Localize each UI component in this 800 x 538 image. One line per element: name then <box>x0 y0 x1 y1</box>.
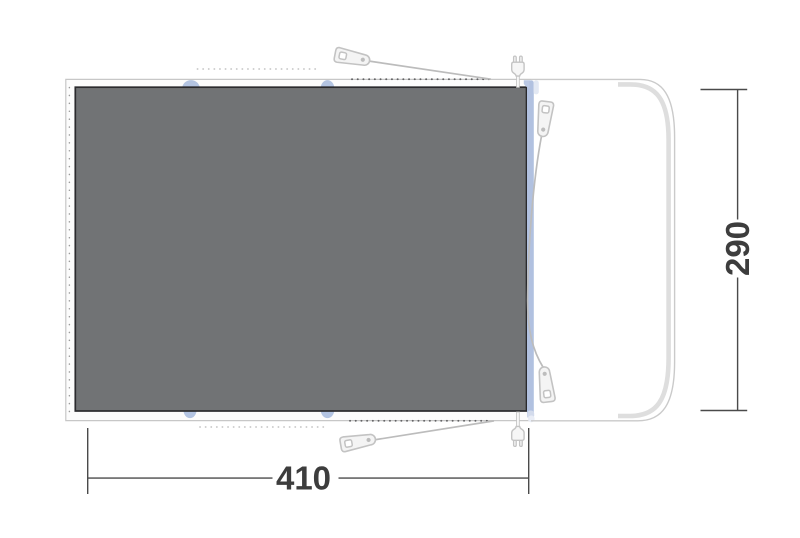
svg-text:410: 410 <box>276 460 331 497</box>
svg-text:290: 290 <box>719 221 756 276</box>
